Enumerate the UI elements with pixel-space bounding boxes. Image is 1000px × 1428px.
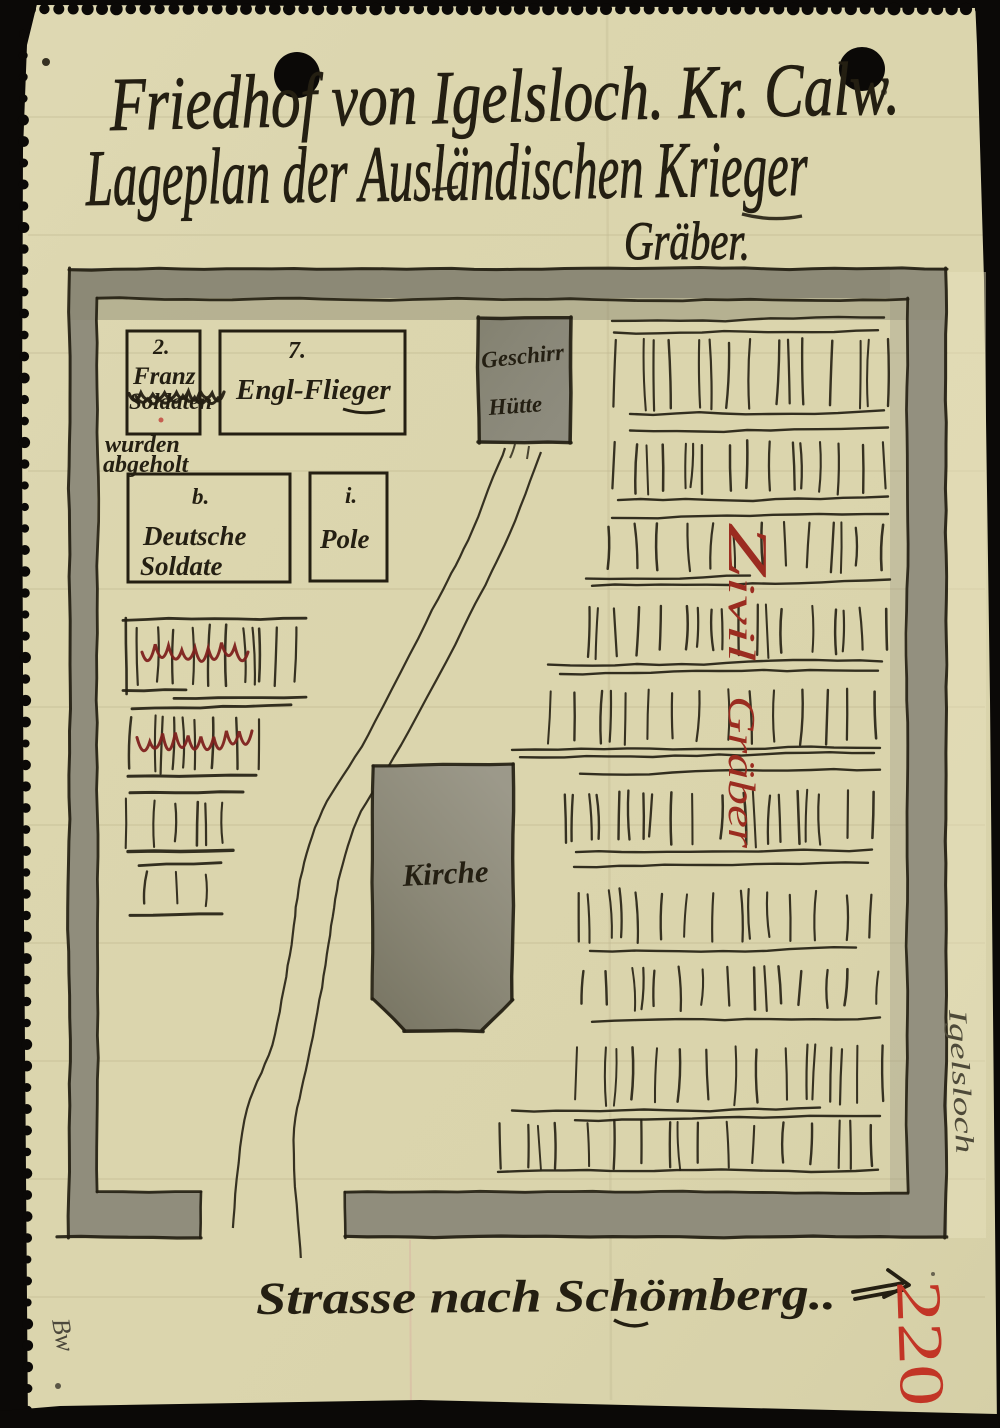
- svg-text:Kirche: Kirche: [401, 854, 490, 894]
- svg-text:Bw: Bw: [46, 1316, 80, 1354]
- svg-text:Gräber.: Gräber.: [624, 211, 750, 271]
- svg-text:Hütte: Hütte: [487, 391, 543, 420]
- svg-text:i.: i.: [345, 483, 357, 508]
- svg-text:2.: 2.: [152, 334, 170, 359]
- svg-text:7.: 7.: [288, 338, 306, 364]
- svg-text:Deutsche: Deutsche: [142, 521, 247, 551]
- svg-text:Soldate: Soldate: [140, 551, 223, 581]
- svg-text:Pole: Pole: [319, 524, 369, 554]
- svg-text:b.: b.: [192, 484, 209, 509]
- svg-text:Lageplan der Ausländischen Kri: Lageplan der Ausländischen Krieger: [85, 125, 809, 223]
- svg-text:Engl-Flieger: Engl-Flieger: [235, 374, 391, 406]
- svg-text:220: 220: [883, 1279, 958, 1407]
- svg-text:Franz: Franz: [132, 363, 196, 390]
- svg-text:Strasse nach Schömberg..: Strasse nach Schömberg..: [256, 1268, 836, 1324]
- svg-text:Gräber: Gräber: [720, 696, 762, 848]
